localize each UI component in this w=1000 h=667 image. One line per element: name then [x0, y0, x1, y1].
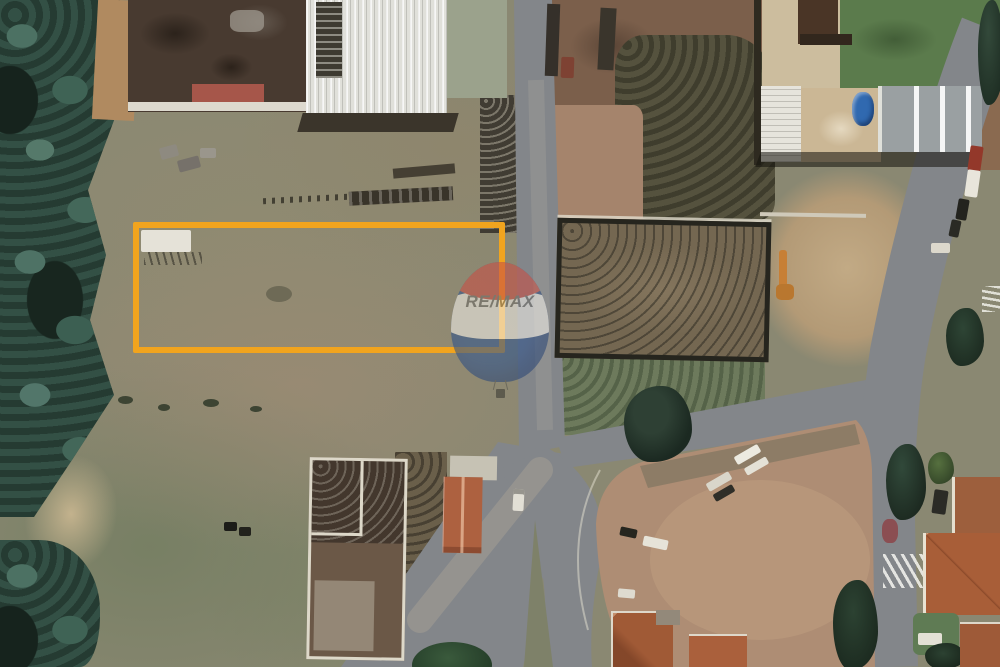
dark-car-field	[224, 522, 237, 531]
balloon-basket-icon	[496, 389, 505, 398]
shrub-dot	[118, 396, 133, 404]
walled-compound-south	[306, 457, 408, 661]
fenced-lot-east	[555, 218, 772, 362]
complex-left-wall	[754, 0, 761, 165]
compound-light-room	[313, 580, 374, 651]
gray-vehicle	[200, 148, 216, 158]
shrub-dot	[250, 406, 262, 412]
trees-over-main-road	[886, 444, 926, 520]
white-car-east-road	[931, 243, 950, 253]
tree-by-se-house	[928, 452, 954, 484]
trees-se-corner	[925, 643, 965, 667]
dark-car-field	[239, 527, 251, 536]
property-highlight-box	[133, 222, 505, 353]
red-truck-north	[561, 57, 575, 78]
orange-excavator-body	[776, 284, 794, 300]
tree-east-road	[946, 308, 984, 366]
trees-northeast-corner	[978, 0, 1000, 105]
block-structure-gray	[656, 610, 680, 625]
tree-shadow-center	[624, 386, 692, 462]
gray-vehicle	[159, 144, 179, 160]
terracotta-house-south	[442, 477, 482, 554]
timber-pile-north-1	[545, 4, 561, 76]
shrub-dot	[203, 399, 219, 407]
remax-balloon-watermark: RE/MAX	[451, 262, 549, 404]
white-ribbed-roof	[761, 86, 801, 162]
satellite-photo: RE/MAX	[0, 0, 1000, 667]
complex-shadow	[755, 152, 982, 167]
white-car-vertical-road	[512, 489, 524, 512]
big-terracotta-house-se	[923, 533, 1000, 615]
vehicle-cluster-northwest	[160, 144, 220, 184]
crosswalk-right-edge	[982, 286, 1000, 312]
white-car-block	[618, 588, 636, 598]
block-house-terracotta-2	[689, 634, 747, 667]
corner-house-terracotta	[960, 622, 1000, 667]
brand-text: RE/MAX	[451, 292, 549, 312]
balloon-envelope-icon: RE/MAX	[451, 262, 549, 382]
water-tank-blue	[852, 92, 874, 126]
trees-along-main-road	[833, 580, 878, 667]
shrub-dot	[158, 404, 170, 411]
maroon-car-crossing	[882, 519, 898, 543]
gate-bar	[800, 34, 852, 45]
gray-vehicle	[177, 155, 201, 172]
gray-roof-building	[878, 86, 982, 152]
crosswalk-main	[883, 554, 923, 588]
timber-pile-north-2	[597, 8, 616, 71]
